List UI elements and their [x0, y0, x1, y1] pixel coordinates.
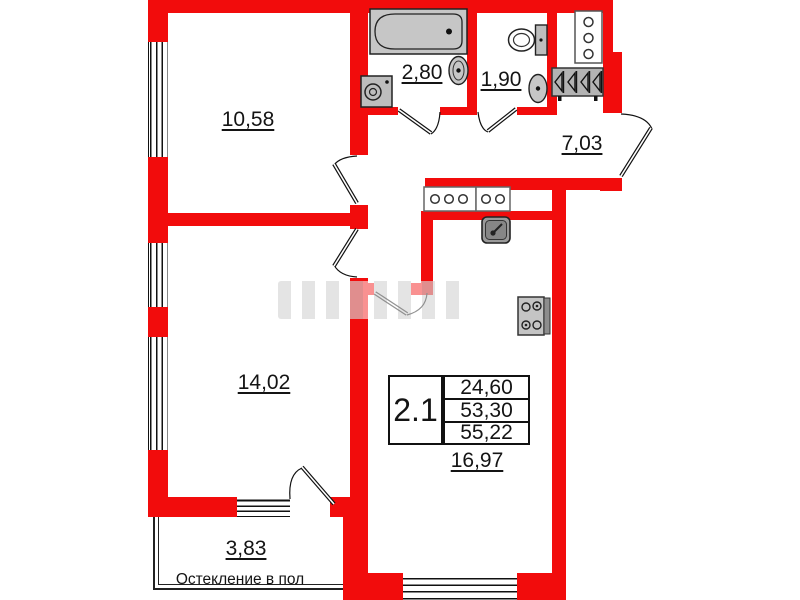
- area-label-kitchen-living: 16,97: [451, 449, 504, 473]
- wall-bath-bottom-mid: [440, 107, 477, 115]
- wall-bath-bottom-left: [366, 107, 398, 115]
- area-label-wc: 1,90: [481, 68, 522, 92]
- table-value-2: 53,30: [460, 399, 513, 423]
- area-label-balcony: 3,83: [226, 537, 267, 561]
- window-bedroom2-lower: [148, 337, 168, 450]
- wall-bedroom2-bottom: [148, 497, 237, 517]
- wall-living-bottom-right: [517, 573, 566, 600]
- window-living: [403, 577, 517, 600]
- bedroom2-door-icon: [334, 229, 357, 277]
- table-row-3: 55,22: [443, 421, 530, 445]
- table-value-3: 55,22: [460, 421, 513, 445]
- watermark: [278, 281, 468, 319]
- wall-bath-wc-divider: [467, 0, 477, 107]
- wall-left-pier-3: [148, 307, 168, 337]
- stove-icon: [517, 296, 551, 336]
- bedroom1-door-icon: [334, 156, 357, 203]
- area-label-hallway: 7,03: [562, 132, 603, 156]
- floor-plan: 10,58 2,80 1,90 7,03 14,02 16,97 3,83 Ос…: [0, 0, 800, 600]
- bathtub-icon: [369, 8, 468, 55]
- balcony-door-icon: [290, 467, 334, 504]
- wash-basin-icon: [448, 55, 469, 86]
- wash-basin-small-icon: [528, 73, 548, 104]
- wall-balcony-block: [330, 497, 368, 517]
- table-row-2: 53,30: [443, 398, 530, 423]
- wall-room-divider: [148, 213, 361, 226]
- entrance-door-icon: [621, 114, 652, 176]
- window-bedroom2-upper: [148, 243, 168, 307]
- vent-shaft-icon: [574, 10, 603, 64]
- unit-type-cell: 2.1: [388, 375, 443, 445]
- wall-living-bottom-left: [343, 573, 403, 600]
- wall-central-mid: [350, 205, 368, 229]
- wall-bath-bottom-right: [517, 107, 557, 115]
- kitchen-sink-icon: [481, 216, 511, 244]
- area-label-bathroom: 2,80: [402, 61, 443, 85]
- wall-left-pier-2: [148, 157, 168, 243]
- wc-door-icon: [478, 109, 516, 132]
- bathroom-door-icon: [399, 110, 440, 134]
- unit-type-value: 2.1: [393, 392, 437, 429]
- window-balcony: [237, 499, 290, 517]
- window-bedroom1: [148, 42, 168, 157]
- wardrobe-icon: [551, 67, 604, 102]
- wall-left-pier-1: [148, 13, 168, 42]
- table-row-1: 24,60: [443, 375, 530, 400]
- area-label-bedroom1: 10,58: [222, 108, 275, 132]
- wall-kitchen-right: [552, 185, 566, 600]
- wall-right-upper: [603, 0, 613, 52]
- kitchen-vent-icon: [423, 186, 511, 212]
- wall-right-step: [603, 52, 622, 113]
- wall-kitchen-left: [421, 220, 433, 283]
- toilet-icon: [507, 23, 548, 57]
- area-label-bedroom2: 14,02: [238, 371, 291, 395]
- balcony-glazing-note: Остекление в пол: [176, 571, 304, 589]
- table-value-1: 24,60: [460, 376, 513, 400]
- washing-machine-icon: [360, 75, 393, 108]
- wall-central-lower: [350, 278, 368, 600]
